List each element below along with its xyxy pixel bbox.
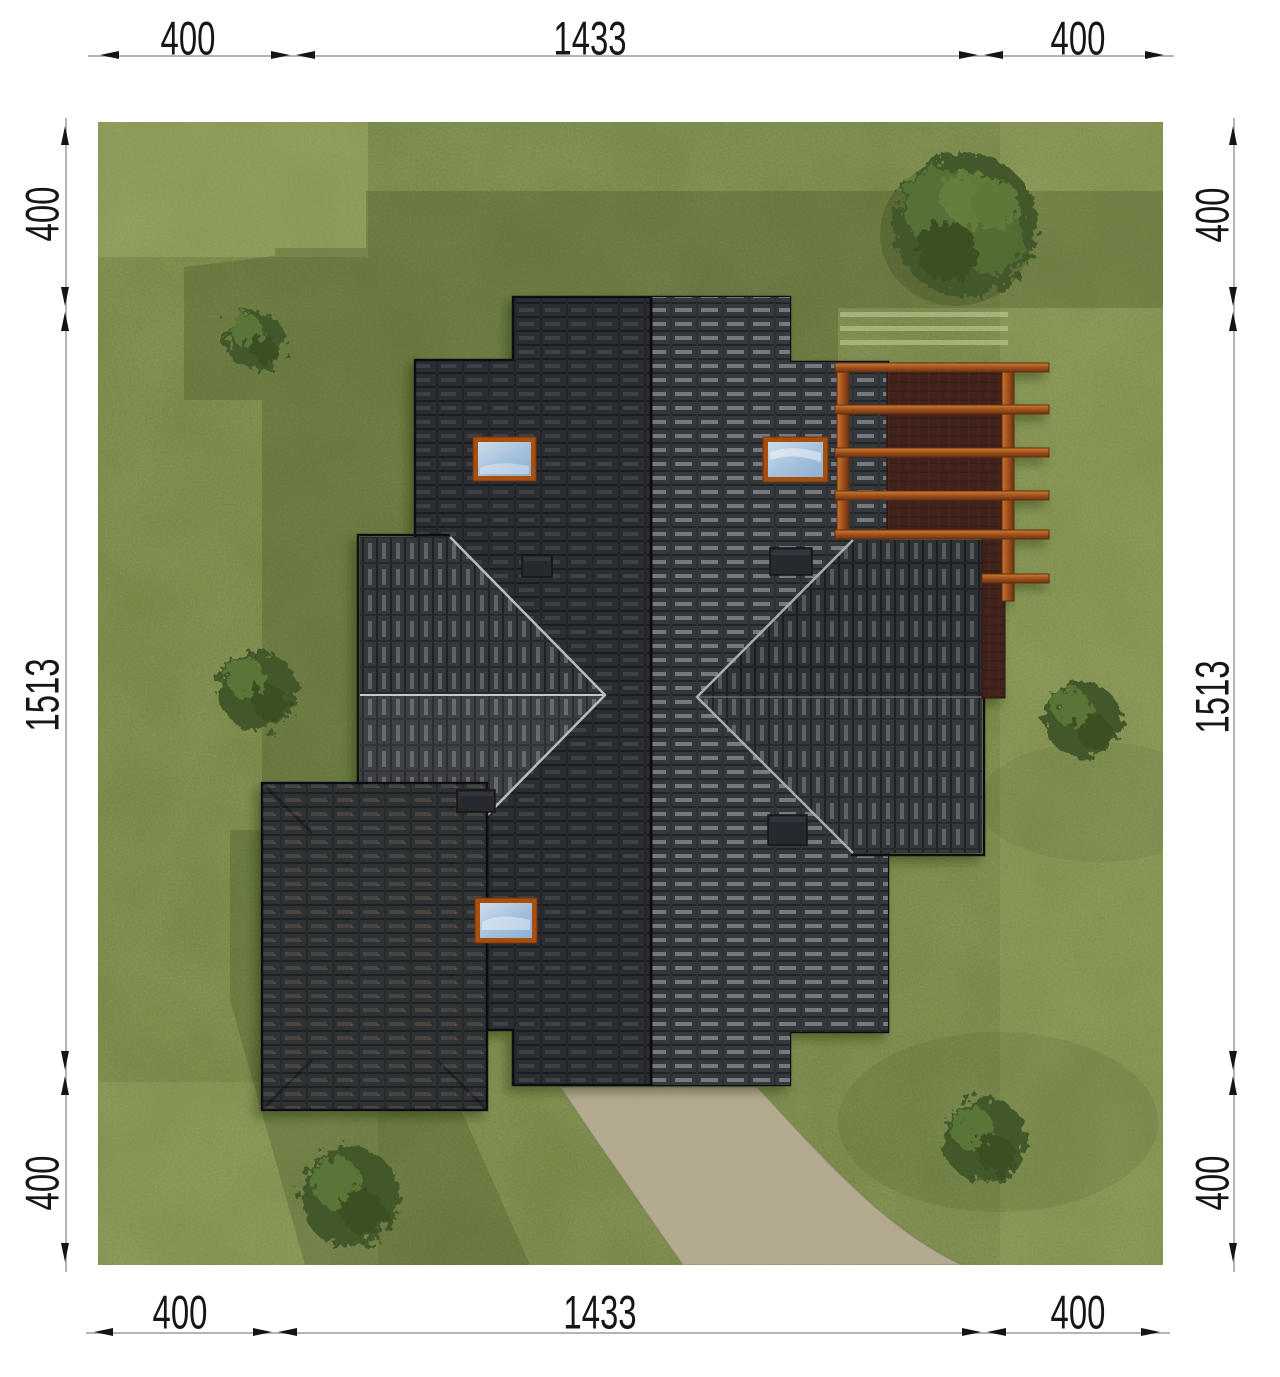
dim-arrow-right-icon [1145, 51, 1164, 59]
bush [943, 1098, 1027, 1182]
dim-arrow-left-icon [100, 51, 119, 59]
dim-arrow-down-icon [1229, 1051, 1237, 1070]
dimension-label: 400 [1189, 1156, 1236, 1211]
dim-arrow-down-icon [1229, 1243, 1237, 1262]
dimension-label: 400 [19, 1156, 66, 1211]
dimension-label: 1513 [1189, 660, 1236, 733]
dimension-label: 400 [19, 187, 66, 242]
skylight [473, 437, 536, 481]
dimension-label: 400 [1051, 15, 1106, 62]
dimension-label: 400 [1189, 188, 1236, 243]
dimension-label: 1433 [563, 1289, 636, 1336]
garage-roof [262, 783, 487, 1110]
dim-arrow-right-icon [962, 1328, 981, 1336]
dim-arrow-left-icon [987, 1328, 1006, 1336]
dim-arrow-right-icon [271, 51, 290, 59]
pergola-beam-shadows [840, 312, 1008, 345]
dim-arrow-down-icon [61, 1243, 69, 1262]
dim-arrow-up-icon [1229, 312, 1237, 331]
site-plan-canvas [98, 122, 1163, 1265]
dim-arrow-right-icon [959, 51, 978, 59]
bush [225, 310, 285, 370]
dimension-label: 400 [153, 1289, 208, 1336]
dim-arrow-right-icon [1141, 1328, 1160, 1336]
site-plan-scene [98, 122, 1163, 1265]
dim-arrow-down-icon [61, 287, 69, 306]
dim-arrow-up-icon [61, 1076, 69, 1095]
dim-arrow-up-icon [1229, 1076, 1237, 1095]
dim-arrow-left-icon [984, 51, 1003, 59]
dim-arrow-down-icon [61, 1051, 69, 1070]
dimension-label: 1513 [19, 658, 66, 731]
dim-arrow-up-icon [61, 312, 69, 331]
bush [218, 650, 298, 730]
bush [300, 1147, 400, 1247]
skylight [763, 437, 828, 482]
skylight [475, 898, 537, 943]
dim-arrow-left-icon [296, 51, 315, 59]
site-plan-page: 400 1433 400 400 1433 400 400 1513 400 [0, 0, 1280, 1377]
dimension-label: 1433 [553, 15, 626, 62]
dim-arrow-up-icon [1229, 126, 1237, 145]
dim-arrow-up-icon [61, 126, 69, 145]
bush [1045, 682, 1121, 758]
dim-arrow-right-icon [253, 1328, 272, 1336]
dimension-line [88, 55, 1174, 57]
dimension-label: 400 [1051, 1289, 1106, 1336]
pergola-post [1002, 365, 1014, 601]
dimension-label: 400 [161, 15, 216, 62]
light-grass-patch [98, 122, 368, 257]
dim-arrow-down-icon [1229, 287, 1237, 306]
dim-arrow-left-icon [94, 1328, 113, 1336]
dim-arrow-left-icon [278, 1328, 297, 1336]
